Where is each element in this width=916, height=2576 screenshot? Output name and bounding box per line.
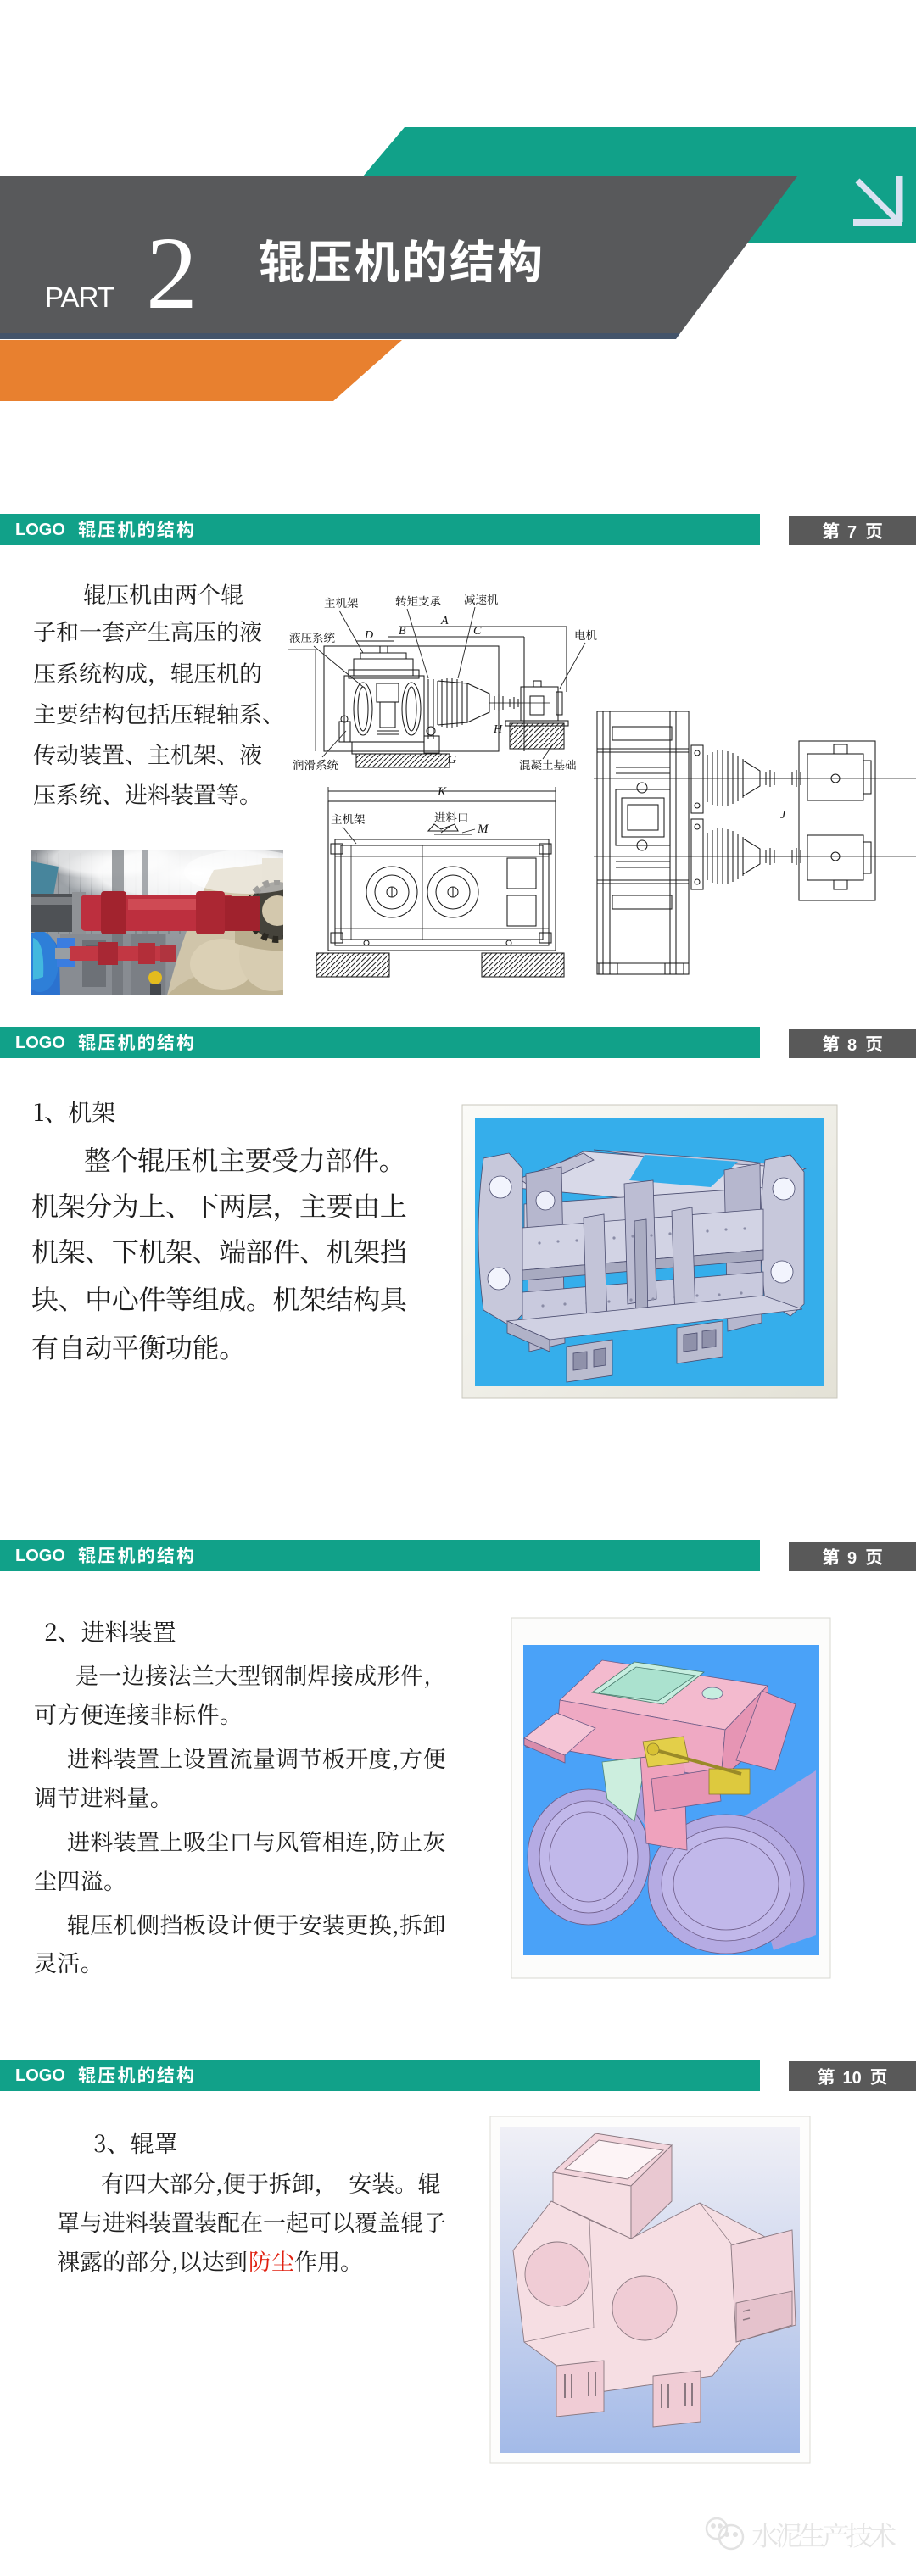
svg-text:G: G xyxy=(448,754,456,767)
svg-text:PART: PART xyxy=(45,282,114,313)
svg-text:LOGO: LOGO xyxy=(15,1034,65,1052)
svg-text:K: K xyxy=(437,785,447,799)
svg-text:9: 9 xyxy=(847,1549,857,1568)
svg-text:10: 10 xyxy=(843,2069,862,2088)
svg-text:LOGO: LOGO xyxy=(15,1547,65,1565)
svg-text:2: 2 xyxy=(146,216,198,331)
svg-text:7: 7 xyxy=(847,523,857,542)
svg-text:LOGO: LOGO xyxy=(15,2066,65,2085)
svg-text:M: M xyxy=(477,822,489,836)
svg-text:J: J xyxy=(780,809,786,822)
svg-text:C: C xyxy=(473,625,482,638)
svg-text:D: D xyxy=(364,629,373,642)
svg-text:B: B xyxy=(399,625,406,638)
svg-text:8: 8 xyxy=(847,1036,857,1055)
svg-text:H: H xyxy=(493,723,503,736)
svg-text:A: A xyxy=(440,615,449,627)
svg-text:LOGO: LOGO xyxy=(15,521,65,539)
